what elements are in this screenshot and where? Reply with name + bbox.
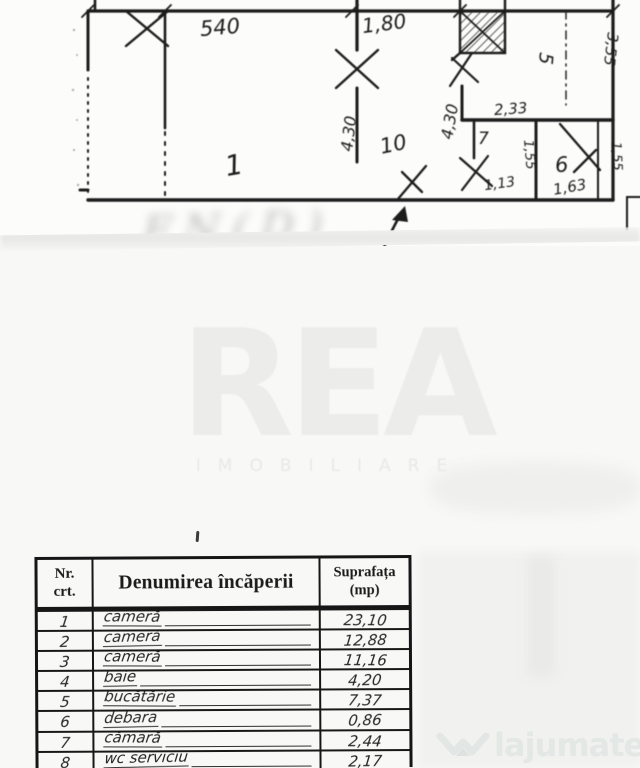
dim-180: 1,80 <box>361 9 408 38</box>
logo-text: lajumate.ro <box>494 729 640 761</box>
dim-355: 3,55 <box>600 32 622 67</box>
room-1-label: 1 <box>222 147 245 183</box>
dim-163: 1,63 <box>552 175 588 199</box>
room-area: 7,37 <box>321 690 409 709</box>
row-number: 2 <box>38 632 94 650</box>
table-row: 3 cameră 11,16 <box>38 648 409 670</box>
table-row: 1 cameră 23,10 <box>38 608 409 630</box>
room-7-label: 7 <box>478 129 489 149</box>
watermark-brand: REA <box>180 316 480 452</box>
watermark: REA IMOBILIARE <box>180 316 480 476</box>
room-name: cameră <box>94 631 321 650</box>
lajumate-logo[interactable]: lajumate.ro <box>436 724 636 766</box>
row-number: 7 <box>38 732 94 750</box>
room-name: bucătărie <box>94 691 321 710</box>
header-mp: (mp) <box>350 582 380 600</box>
row-number: 1 <box>38 612 94 630</box>
dim-540: 540 <box>199 14 241 41</box>
room-name: debara <box>94 711 321 730</box>
room-5-label: 5 <box>534 52 557 66</box>
room-name: wc serviciu <box>94 751 321 768</box>
room-area: 12,88 <box>321 630 409 649</box>
row-number: 6 <box>38 712 94 730</box>
dim-113: 1,13 <box>483 174 516 194</box>
dim-233: 2,33 <box>493 99 528 119</box>
room-name: baie <box>94 671 321 690</box>
room-name: cameră <box>94 651 321 670</box>
room-area: 4,20 <box>321 670 409 689</box>
row-number: 4 <box>38 672 94 690</box>
table-row: 8 wc serviciu 2,17 <box>38 749 409 768</box>
scanned-document-page: 540 1 1,80 4,30 4,30 10 5 2,33 3,55 7 1,… <box>0 0 640 768</box>
table-row: 6 debara 0,86 <box>38 708 409 730</box>
plan-labels: 540 1 1,80 4,30 4,30 10 5 2,33 3,55 7 1,… <box>199 9 625 199</box>
room-area: 0,86 <box>321 710 409 729</box>
logo-brand: lajumate <box>494 726 640 764</box>
dim-155-b: 1,55 <box>608 141 624 171</box>
header-nr: Nr. <box>55 566 75 583</box>
table-row: 5 bucătărie 7,37 <box>38 688 409 710</box>
scan-streak <box>528 556 554 676</box>
room-area: 11,16 <box>321 650 409 669</box>
room-10-label: 10 <box>378 130 409 159</box>
table-row: 2 cameră 12,88 <box>38 628 409 650</box>
dim-155-a: 1,55 <box>520 139 539 170</box>
room-name: cameră <box>94 610 321 629</box>
header-area: Suprafața (mp) <box>320 558 408 605</box>
row-number: 8 <box>38 752 94 768</box>
room-area: 2,17 <box>321 751 409 768</box>
header-suprafata: Suprafața <box>333 564 395 582</box>
room-6-label: 6 <box>554 152 569 177</box>
header-crt: crt. <box>54 583 76 600</box>
row-number: 3 <box>38 652 94 670</box>
room-name: cămară <box>94 731 321 750</box>
dim-430-b: 4,30 <box>437 102 462 140</box>
scan-speckles <box>72 29 79 186</box>
table-row: 7 cămară 2,44 <box>38 729 409 751</box>
lajumate-logo-icon <box>436 725 490 765</box>
row-number: 5 <box>38 692 94 710</box>
table-row: 4 baie 4,20 <box>38 668 409 690</box>
room-area-table: Nr. crt. Denumirea încăperii Suprafața (… <box>34 555 412 768</box>
table-header: Nr. crt. Denumirea încăperii Suprafața (… <box>37 558 408 610</box>
header-room-name: Denumirea încăperii <box>93 558 320 606</box>
room-area: 2,44 <box>321 731 409 750</box>
header-nr-crt: Nr. crt. <box>37 560 93 607</box>
room-area: 23,10 <box>321 610 409 629</box>
watermark-subtitle: IMOBILIARE <box>180 456 480 476</box>
